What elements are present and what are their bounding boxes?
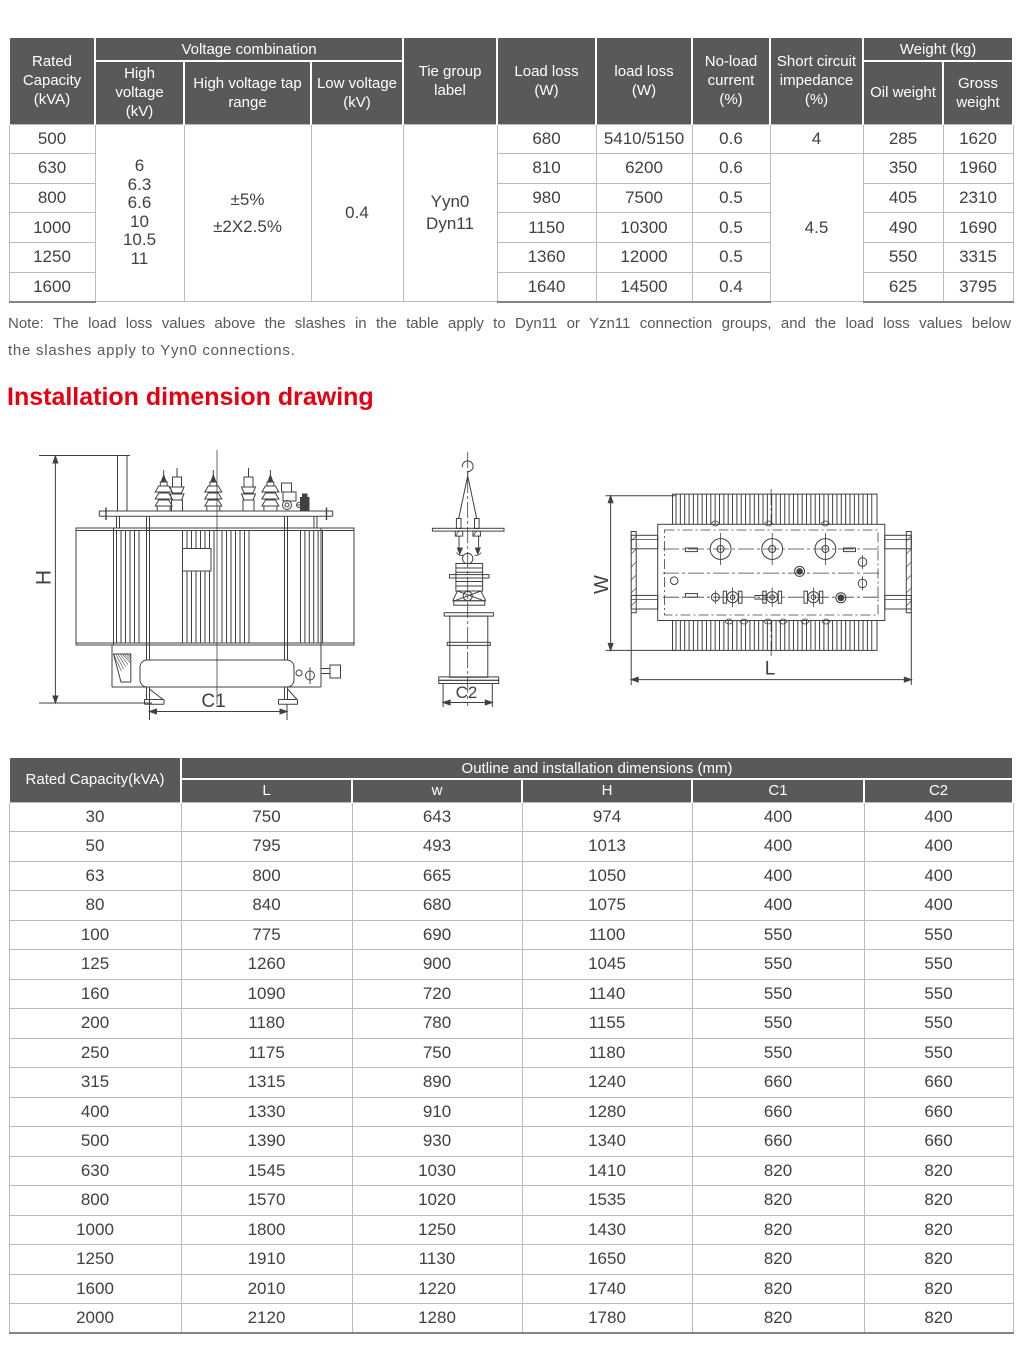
svg-text:C2: C2 [456,683,478,702]
svg-text:W: W [591,575,613,594]
svg-text:C1: C1 [201,691,225,712]
svg-text:H: H [33,570,56,585]
svg-text:L: L [765,659,776,680]
